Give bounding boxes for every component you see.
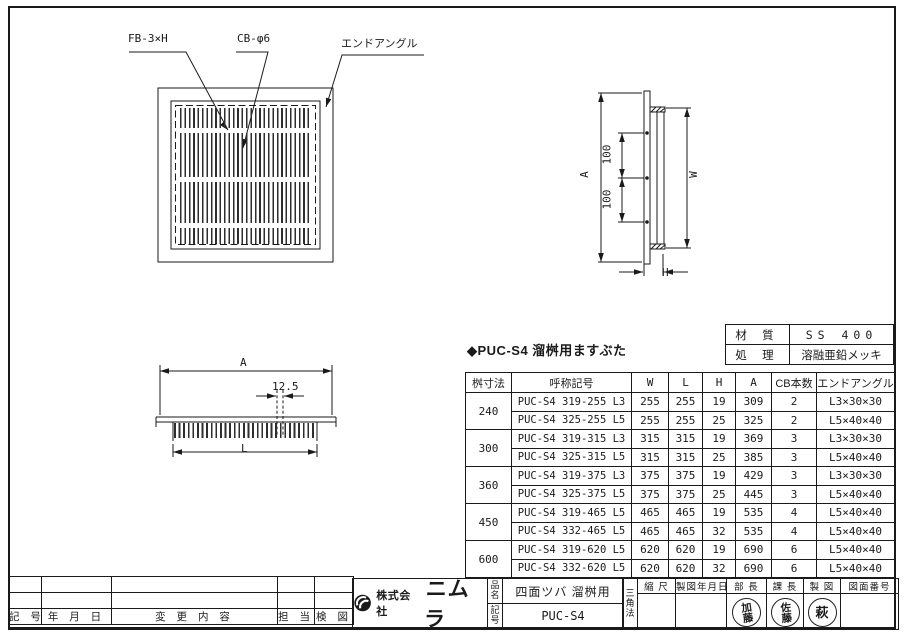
cb-count-cell: 2 <box>772 393 817 412</box>
product-name: 四面ツバ 溜桝用 <box>503 579 624 604</box>
end-angle-cell: L5×40×40 <box>817 411 895 430</box>
w-cell: 255 <box>632 393 669 412</box>
side-dim-100a: 100 <box>600 145 613 165</box>
end-angle-cell: L3×30×30 <box>817 430 895 449</box>
end-angle-cell: L3×30×30 <box>817 467 895 486</box>
spec-row: PUC-S4 332-620 L5620620326906L5×40×40 <box>466 559 895 578</box>
treatment-value: 溶融亜鉛メッキ <box>790 345 894 365</box>
side-dim-100b: 100 <box>600 190 613 210</box>
a-cell: 325 <box>736 411 772 430</box>
spec-row: PUC-S4 325-375 L5375375254453L5×40×40 <box>466 485 895 504</box>
size-cell: 240 <box>466 393 512 430</box>
spec-table: 桝寸法 呼称記号 W L H A CB本数 エンドアングル 240PUC-S4 … <box>465 372 895 578</box>
cb-count-cell: 3 <box>772 467 817 486</box>
header-section-chief: 課 長 <box>767 579 804 594</box>
end-angle-cell: L5×40×40 <box>817 559 895 578</box>
a-cell: 690 <box>736 541 772 560</box>
spec-row: 300PUC-S4 319-315 L3315315193693L3×30×30 <box>466 430 895 449</box>
company-name: ニムラ <box>422 573 489 633</box>
company-prefix: 株式会社 <box>376 587 420 619</box>
side-dim-a: A <box>578 171 591 178</box>
header-cb-count: CB本数 <box>772 373 817 393</box>
l-cell: 255 <box>669 393 703 412</box>
revision-header-staff: 担 当 <box>278 609 315 625</box>
w-cell: 465 <box>632 522 669 541</box>
spec-row: 360PUC-S4 319-375 L3375375194293L3×30×30 <box>466 467 895 486</box>
size-cell: 450 <box>466 504 512 541</box>
code-cell: PUC-S4 332-620 L5 <box>512 559 632 578</box>
name-code-table: 品名 四面ツバ 溜桝用 記号 PUC-S4 <box>487 578 624 629</box>
revision-header-check: 検 図 <box>315 609 354 625</box>
stamp-kato: 加藤 <box>730 596 763 629</box>
revision-empty-row <box>9 577 354 593</box>
w-cell: 315 <box>632 430 669 449</box>
section-teeth <box>174 423 316 438</box>
stamp-hagi: 萩 <box>808 598 837 627</box>
material-table: 材 質 SS 400 処 理 溶融亜鉛メッキ <box>725 324 894 365</box>
header-code: 呼称記号 <box>512 373 632 393</box>
h-cell: 25 <box>703 411 736 430</box>
code-cell: PUC-S4 325-315 L5 <box>512 448 632 467</box>
dept-chief-stamp-cell: 加藤 <box>727 594 767 630</box>
end-angle-cell: L5×40×40 <box>817 504 895 523</box>
l-cell: 620 <box>669 559 703 578</box>
cb-count-cell: 6 <box>772 559 817 578</box>
revision-header-symbol: 記 号 <box>9 609 42 625</box>
projection-box: 三角法 <box>622 578 638 628</box>
end-angle-cell: L5×40×40 <box>817 485 895 504</box>
plan-label-end-angle: エンドアングル <box>341 35 418 51</box>
header-drafter: 製 図 <box>804 579 841 594</box>
code-cell: PUC-S4 325-375 L5 <box>512 485 632 504</box>
revision-table: 記 号 年 月 日 変 更 内 容 担 当 検 図 <box>8 576 354 625</box>
code-cell: PUC-S4 325-255 L5 <box>512 411 632 430</box>
l-cell: 315 <box>669 430 703 449</box>
drafter-stamp-cell: 萩 <box>804 594 841 630</box>
l-cell: 465 <box>669 522 703 541</box>
header-scale: 縮 尺 <box>638 579 676 594</box>
code-cell: PUC-S4 319-465 L5 <box>512 504 632 523</box>
cb-count-cell: 3 <box>772 448 817 467</box>
spec-table-title: ◆PUC-S4 溜桝用ますぶた <box>467 340 627 359</box>
h-cell: 19 <box>703 467 736 486</box>
cb-count-cell: 6 <box>772 541 817 560</box>
a-cell: 690 <box>736 559 772 578</box>
spec-row: PUC-S4 325-255 L5255255253252L5×40×40 <box>466 411 895 430</box>
a-cell: 535 <box>736 504 772 523</box>
revision-empty-row <box>9 593 354 609</box>
name-label: 品名 <box>489 580 502 600</box>
section-dim-a: A <box>240 356 247 369</box>
header-end-angle: エンドアングル <box>817 373 895 393</box>
spec-table-body: 240PUC-S4 319-255 L3255255193092L3×30×30… <box>466 393 895 578</box>
l-cell: 375 <box>669 467 703 486</box>
drawing-sheet: { "drawing": { "plan": { "label_fb": "FB… <box>0 0 906 639</box>
header-w: W <box>632 373 669 393</box>
l-cell: 315 <box>669 448 703 467</box>
a-cell: 535 <box>736 522 772 541</box>
section-dim-pitch: 12.5 <box>272 380 299 393</box>
a-cell: 385 <box>736 448 772 467</box>
code-cell: PUC-S4 332-465 L5 <box>512 522 632 541</box>
end-angle-cell: L3×30×30 <box>817 393 895 412</box>
spec-row: 450PUC-S4 319-465 L5465465195354L5×40×40 <box>466 504 895 523</box>
header-drawing-date: 製図年月日 <box>676 579 727 594</box>
cb-count-cell: 4 <box>772 522 817 541</box>
h-cell: 19 <box>703 541 736 560</box>
material-row: 材 質 SS 400 <box>726 325 894 345</box>
header-size: 桝寸法 <box>466 373 512 393</box>
cb-count-cell: 4 <box>772 504 817 523</box>
grating-bars-band <box>180 108 312 128</box>
plan-label-cb: CB-φ6 <box>237 32 270 45</box>
a-cell: 309 <box>736 393 772 412</box>
treatment-label: 処 理 <box>726 345 790 365</box>
code-cell: PUC-S4 319-375 L3 <box>512 467 632 486</box>
grating-bars-band <box>180 182 312 223</box>
size-cell: 360 <box>466 467 512 504</box>
cb-count-cell: 2 <box>772 411 817 430</box>
w-cell: 375 <box>632 485 669 504</box>
stamp-sato: 佐藤 <box>769 597 800 628</box>
drawing-number-value <box>841 594 899 630</box>
product-code: PUC-S4 <box>503 604 624 629</box>
scale-value <box>638 594 676 630</box>
side-dim-w: W <box>687 171 700 178</box>
end-angle-cell: L5×40×40 <box>817 541 895 560</box>
code-row: 記号 PUC-S4 <box>488 604 624 629</box>
spec-row: PUC-S4 332-465 L5465465325354L5×40×40 <box>466 522 895 541</box>
nimura-logo-icon <box>353 593 372 613</box>
a-cell: 369 <box>736 430 772 449</box>
l-cell: 465 <box>669 504 703 523</box>
l-cell: 255 <box>669 411 703 430</box>
material-label: 材 質 <box>726 325 790 345</box>
header-drawing-number: 図面番号 <box>841 579 899 594</box>
a-cell: 445 <box>736 485 772 504</box>
section-chief-stamp-cell: 佐藤 <box>767 594 804 630</box>
spec-header-row: 桝寸法 呼称記号 W L H A CB本数 エンドアングル <box>466 373 895 393</box>
code-cell: PUC-S4 319-315 L3 <box>512 430 632 449</box>
header-l: L <box>669 373 703 393</box>
w-cell: 620 <box>632 541 669 560</box>
size-cell: 600 <box>466 541 512 578</box>
a-cell: 429 <box>736 467 772 486</box>
spec-row: PUC-S4 325-315 L5315315253853L5×40×40 <box>466 448 895 467</box>
h-cell: 32 <box>703 522 736 541</box>
spec-row: 240PUC-S4 319-255 L3255255193092L3×30×30 <box>466 393 895 412</box>
w-cell: 255 <box>632 411 669 430</box>
h-cell: 19 <box>703 504 736 523</box>
l-cell: 375 <box>669 485 703 504</box>
approval-body-row: 加藤 佐藤 萩 <box>638 594 899 630</box>
w-cell: 465 <box>632 504 669 523</box>
code-label: 記号 <box>489 605 502 625</box>
w-cell: 315 <box>632 448 669 467</box>
revision-header-row: 記 号 年 月 日 変 更 内 容 担 当 検 図 <box>9 609 354 625</box>
cb-count-cell: 3 <box>772 430 817 449</box>
w-cell: 375 <box>632 467 669 486</box>
spec-row: 600PUC-S4 319-620 L5620620196906L5×40×40 <box>466 541 895 560</box>
revision-header-content: 変 更 内 容 <box>112 609 278 625</box>
header-a: A <box>736 373 772 393</box>
w-cell: 620 <box>632 559 669 578</box>
h-cell: 19 <box>703 393 736 412</box>
approval-table: 縮 尺 製図年月日 部 長 課 長 製 図 図面番号 加藤 佐藤 萩 <box>637 578 899 630</box>
side-view <box>598 91 691 276</box>
h-cell: 25 <box>703 485 736 504</box>
l-cell: 620 <box>669 541 703 560</box>
name-row: 品名 四面ツバ 溜桝用 <box>488 579 624 604</box>
header-dept-chief: 部 長 <box>727 579 767 594</box>
approval-header-row: 縮 尺 製図年月日 部 長 課 長 製 図 図面番号 <box>638 579 899 594</box>
code-cell: PUC-S4 319-255 L3 <box>512 393 632 412</box>
material-value: SS 400 <box>790 325 894 345</box>
grating-bars-band <box>180 228 312 244</box>
drawing-date-value <box>676 594 727 630</box>
material-row: 処 理 溶融亜鉛メッキ <box>726 345 894 365</box>
h-cell: 19 <box>703 430 736 449</box>
size-cell: 300 <box>466 430 512 467</box>
h-cell: 32 <box>703 559 736 578</box>
end-angle-cell: L5×40×40 <box>817 448 895 467</box>
revision-header-date: 年 月 日 <box>42 609 112 625</box>
projection-label: 三角法 <box>624 588 637 618</box>
plan-label-fb: FB-3×H <box>128 32 168 45</box>
header-h: H <box>703 373 736 393</box>
end-angle-cell: L5×40×40 <box>817 522 895 541</box>
section-dim-l: L <box>241 442 248 455</box>
side-dim-h: H <box>662 266 669 279</box>
company-logo-box: 株式会社 ニムラ <box>352 578 488 628</box>
grating-bars-band <box>180 133 312 177</box>
cb-count-cell: 3 <box>772 485 817 504</box>
h-cell: 25 <box>703 448 736 467</box>
code-cell: PUC-S4 319-620 L5 <box>512 541 632 560</box>
